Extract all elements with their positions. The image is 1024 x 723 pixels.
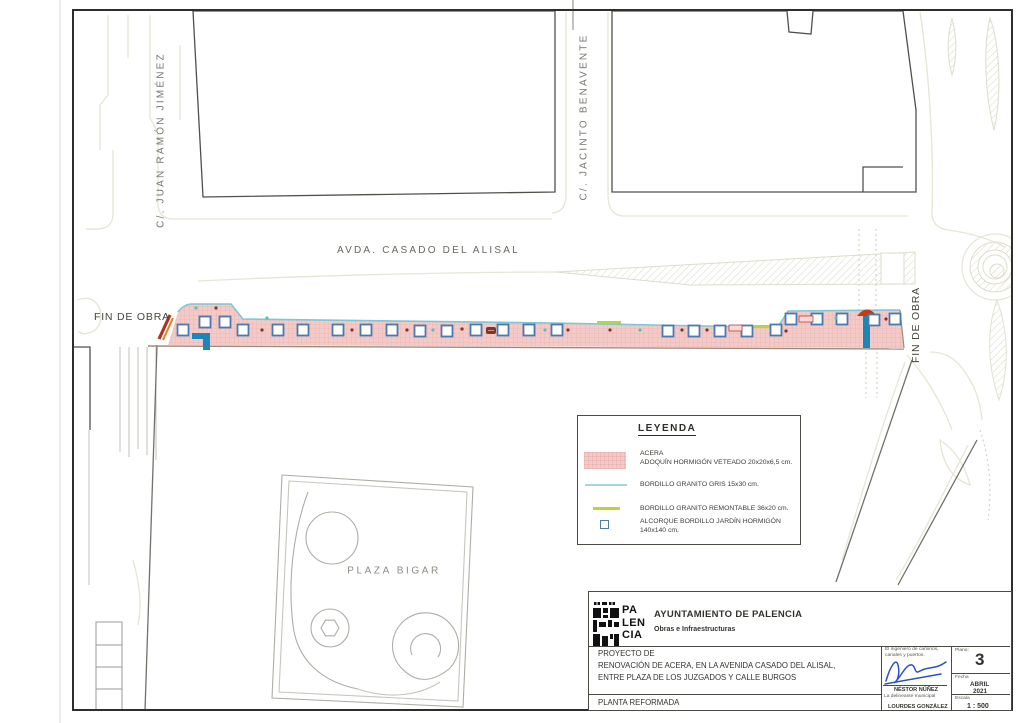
annotation-tag <box>729 325 742 331</box>
fecha-month: ABRIL <box>970 681 989 688</box>
alcorque-square <box>786 314 797 325</box>
alcorque-square <box>715 326 726 337</box>
project-line1: RENOVACIÓN DE ACERA, EN LA AVENIDA CASAD… <box>598 661 835 670</box>
divider <box>881 646 882 710</box>
alcorque-square <box>298 325 309 336</box>
project-label: PROYECTO DE <box>598 649 655 658</box>
legend-swatch-acera <box>584 452 626 469</box>
annotation-tag <box>799 316 813 322</box>
escala-label: Escala <box>955 696 970 701</box>
alcorque-square <box>663 326 674 337</box>
plan-sheet: C/. JUAN RAMÓN JIMÉNEZ C/. JACINTO BENAV… <box>0 0 1024 723</box>
street-label-jacinto: C/. JACINTO BENAVENTE <box>579 34 590 201</box>
alcorque-square <box>837 314 848 325</box>
building-block-northwest <box>193 11 555 197</box>
legend-item-acera-spec: ADOQUÍN HORMIGÓN VETEADO 20x20x6,5 cm. <box>640 458 792 467</box>
legend-item-acera-name: ACERA <box>640 449 792 458</box>
sheet-name: PLANTA REFORMADA <box>598 698 679 707</box>
department-name: Obras e Infraestructuras <box>654 626 735 633</box>
palencia-logo-text: PA LEN CIA <box>622 604 646 642</box>
legend-swatch-bordillo-remontable <box>593 507 620 510</box>
ramp-lines <box>120 347 156 460</box>
divider <box>951 673 1010 674</box>
alcorque-square <box>471 325 482 336</box>
engineer-signature <box>883 655 949 685</box>
plaza-bigar-park <box>272 475 473 707</box>
alcorque-square <box>524 325 535 336</box>
building-block-northeast <box>612 11 916 192</box>
alcorque-square <box>273 325 284 336</box>
divider <box>589 694 881 695</box>
alcorque-square <box>552 325 563 336</box>
alcorque-square <box>869 315 880 326</box>
logo-line: CIA <box>622 629 646 642</box>
plaza-bigar-label: PLAZA BIGAR <box>347 566 441 577</box>
legend-item-bordillo-gris: BORDILLO GRANITO GRIS 15x30 cm. <box>640 480 759 489</box>
plano-label: Plano: <box>955 648 969 653</box>
organization-name: AYUNTAMIENTO DE PALENCIA <box>654 609 802 620</box>
logo-line: LEN <box>622 617 646 630</box>
legend-swatch-bordillo-gris <box>585 484 627 486</box>
legend-item-alcorque-spec: 140x140 cm. <box>640 526 781 535</box>
divider <box>589 646 1010 647</box>
fin-de-obra-label-left: FIN DE OBRA <box>94 311 170 323</box>
signature-line <box>883 685 947 686</box>
legend-swatch-alcorque <box>600 520 609 529</box>
draftsman-name: LOURDES GONZÁLEZ <box>888 704 948 710</box>
alcorque-square <box>387 325 398 336</box>
legend-item-alcorque-name: ALCORQUE BORDILLO JARDÍN HORMIGÓN <box>640 517 781 526</box>
engineer-name: NÉSTOR NÚÑEZ <box>894 687 938 693</box>
escala-value: 1 : 500 <box>967 703 989 710</box>
draftsman-title: La delineante municipal <box>884 694 935 699</box>
alcorque-square <box>689 326 700 337</box>
legend-item-alcorque: ALCORQUE BORDILLO JARDÍN HORMIGÓN 140x14… <box>640 517 781 535</box>
plano-number: 3 <box>975 650 984 670</box>
alcorque-square <box>178 325 189 336</box>
logo-line: PA <box>622 604 646 617</box>
buildings <box>73 11 916 430</box>
alcorque-square <box>238 325 249 336</box>
divider <box>951 646 952 710</box>
alcorque-square <box>220 317 231 328</box>
engineer-title-1: El ingeniero de caminos, <box>885 647 939 652</box>
building-notch <box>787 11 813 34</box>
title-block: PA LEN CIA AYUNTAMIENTO DE PALENCIA Obra… <box>588 591 1012 711</box>
alcorque-square <box>442 326 453 337</box>
alcorque-square <box>415 326 426 337</box>
fin-de-obra-label-right: FIN DE OBRA <box>910 287 922 363</box>
building-ladder-block <box>96 622 122 710</box>
alcorque-square <box>742 326 753 337</box>
project-line2: ENTRE PLAZA DE LOS JUZGADOS Y CALLE BURG… <box>598 673 796 682</box>
street-label-juan-ramon: C/. JUAN RAMÓN JIMÉNEZ <box>156 52 167 228</box>
alcorque-square <box>771 325 782 336</box>
divider <box>951 694 1010 695</box>
legend-title: LEYENDA <box>638 423 696 436</box>
alcorque-square <box>200 317 211 328</box>
alcorque-square <box>361 325 372 336</box>
alcorque-square <box>498 325 509 336</box>
building-block-west <box>73 347 90 430</box>
legend-item-acera: ACERA ADOQUÍN HORMIGÓN VETEADO 20x20x6,5… <box>640 449 792 467</box>
street-label-avenida: AVDA. CASADO DEL ALISAL <box>337 245 520 256</box>
legend-item-bordillo-remontable: BORDILLO GRANITO REMONTABLE 36x20 cm. <box>640 504 789 513</box>
palencia-logo-icon <box>593 602 621 646</box>
alcorque-square <box>333 325 344 336</box>
legend-box: LEYENDA ACERA ADOQUÍN HORMIGÓN VETEADO 2… <box>577 415 801 545</box>
alcorque-square <box>890 314 901 325</box>
median-island <box>556 252 915 285</box>
fecha-label: Fecha <box>955 675 969 680</box>
